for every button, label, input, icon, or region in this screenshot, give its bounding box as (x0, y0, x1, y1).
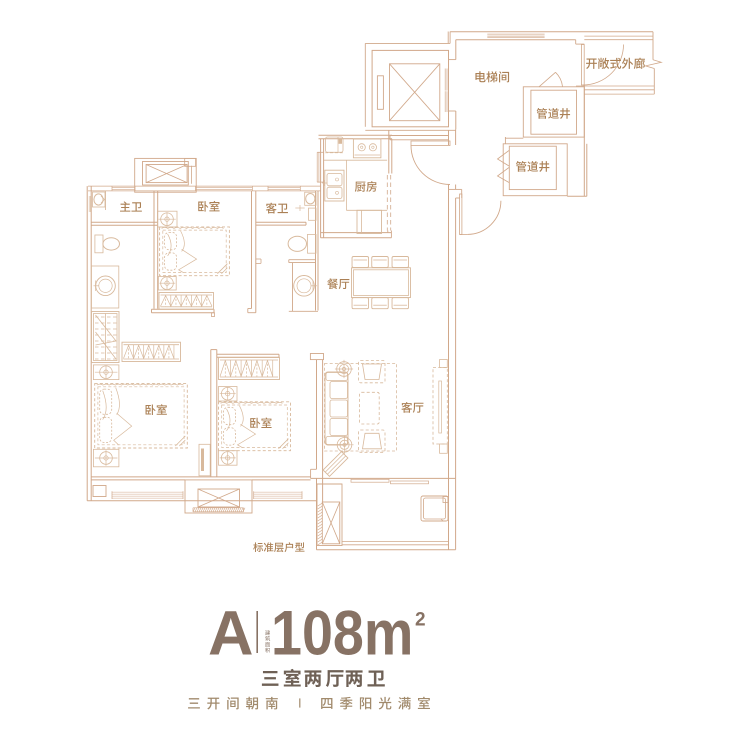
svg-text:108m: 108m (271, 597, 413, 668)
svg-text:A: A (208, 599, 254, 669)
svg-text:2: 2 (415, 610, 426, 631)
